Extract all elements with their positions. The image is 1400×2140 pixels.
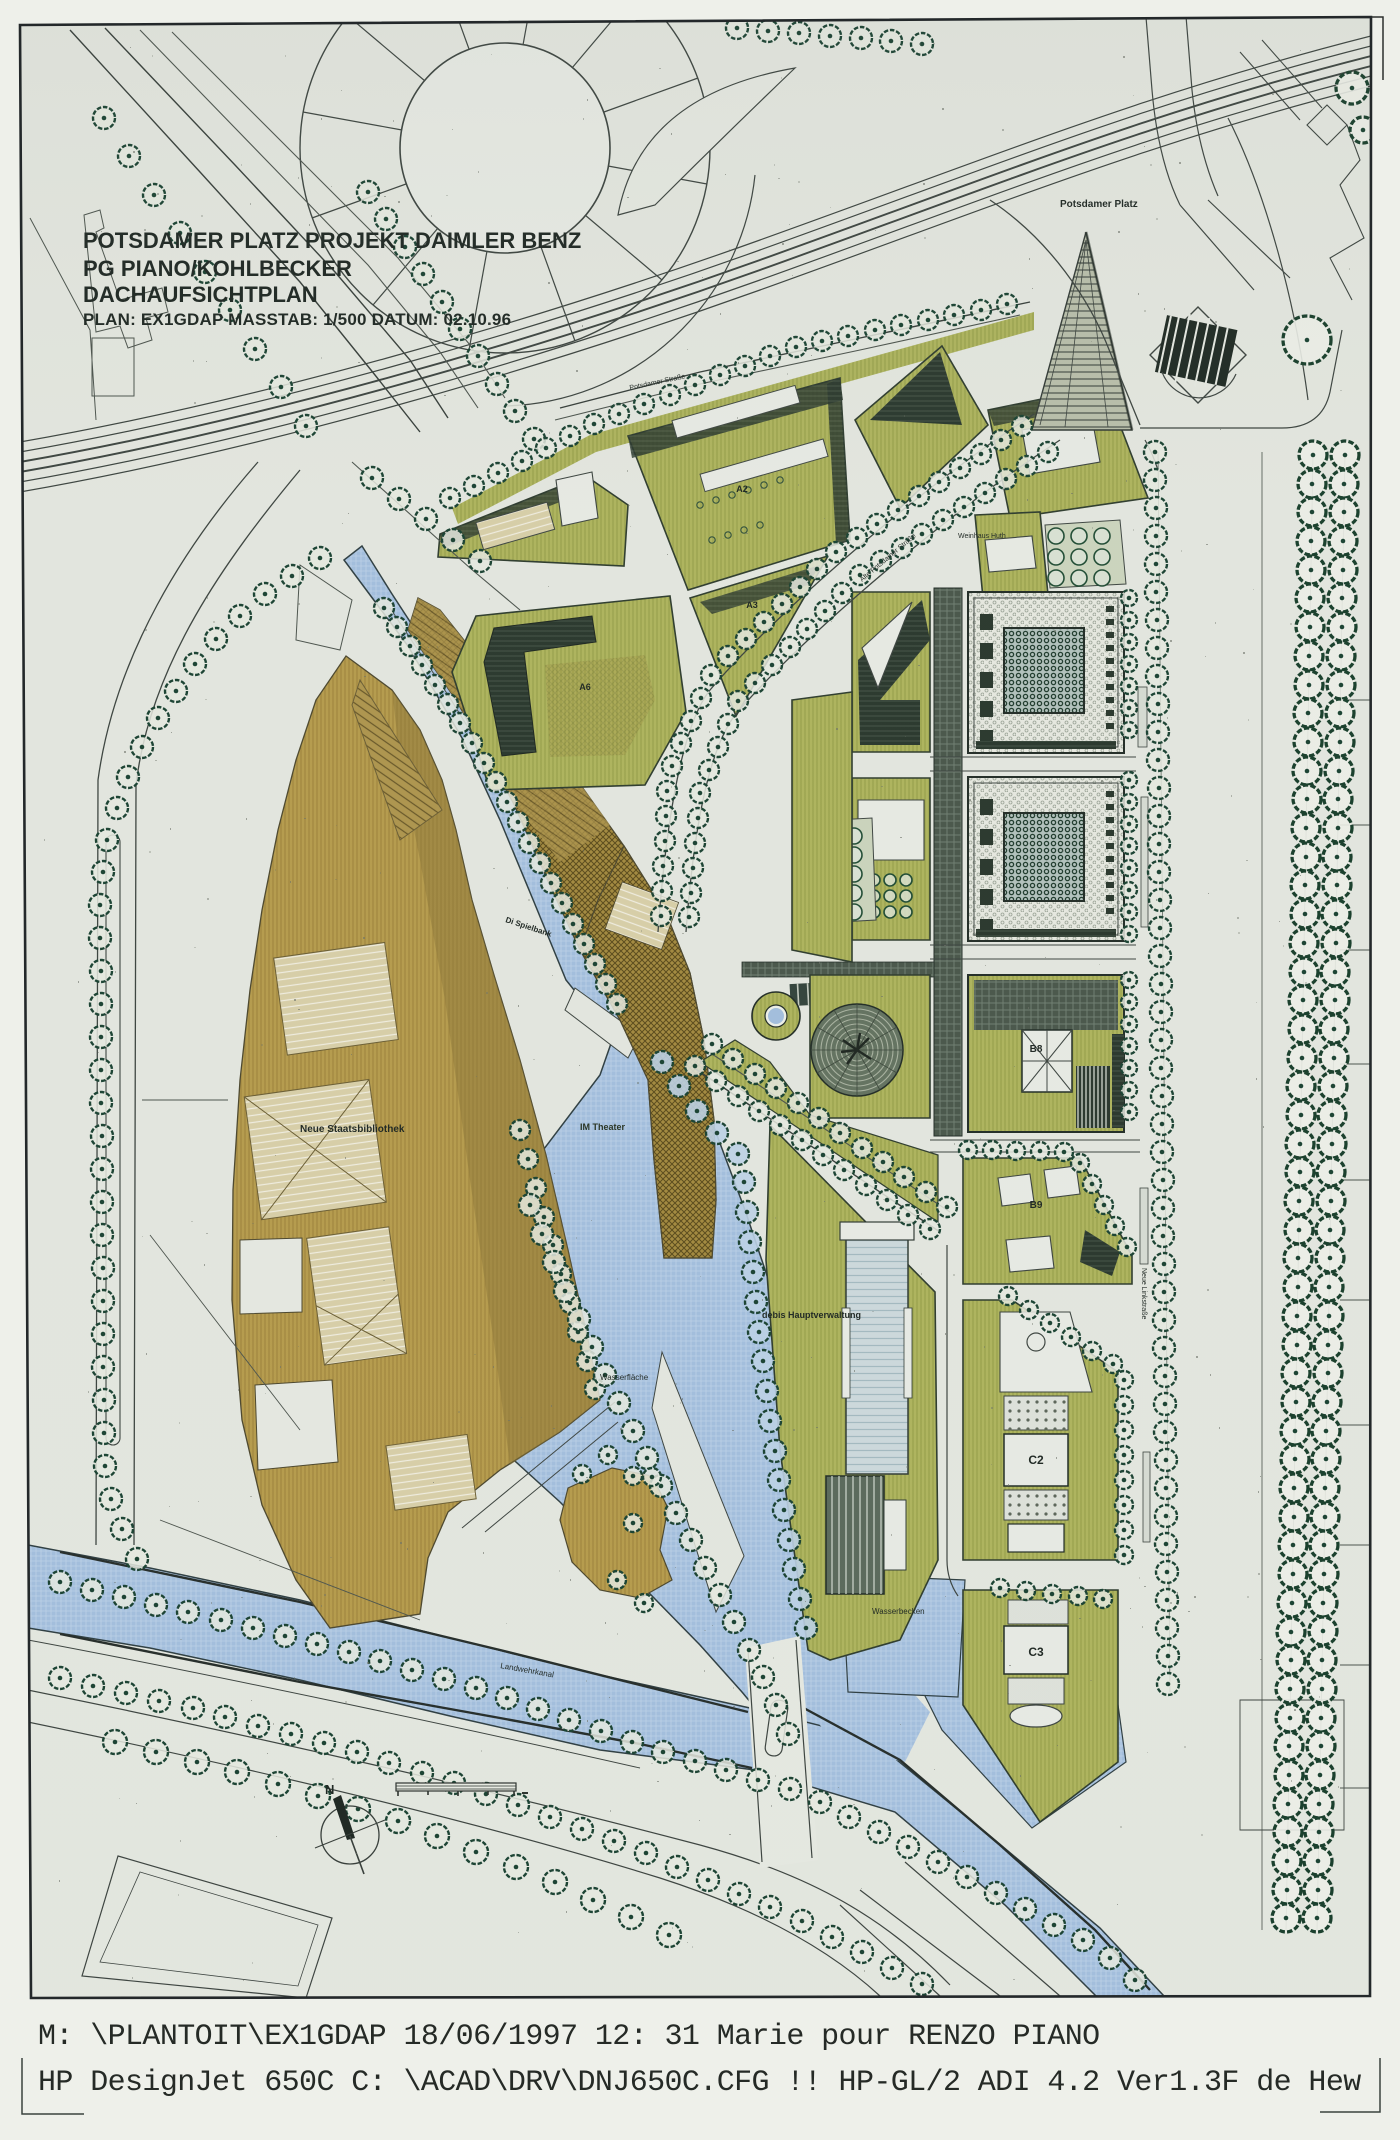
svg-text:M: \PLANTOIT\EX1GDAP 18/06/19: M: \PLANTOIT\EX1GDAP 18/06/1997 12: 31 M… <box>38 2020 1100 2054</box>
svg-text:HP DesignJet 650C C: \ACAD\DRV: HP DesignJet 650C C: \ACAD\DRV\DNJ650C.C… <box>38 2066 1361 2100</box>
